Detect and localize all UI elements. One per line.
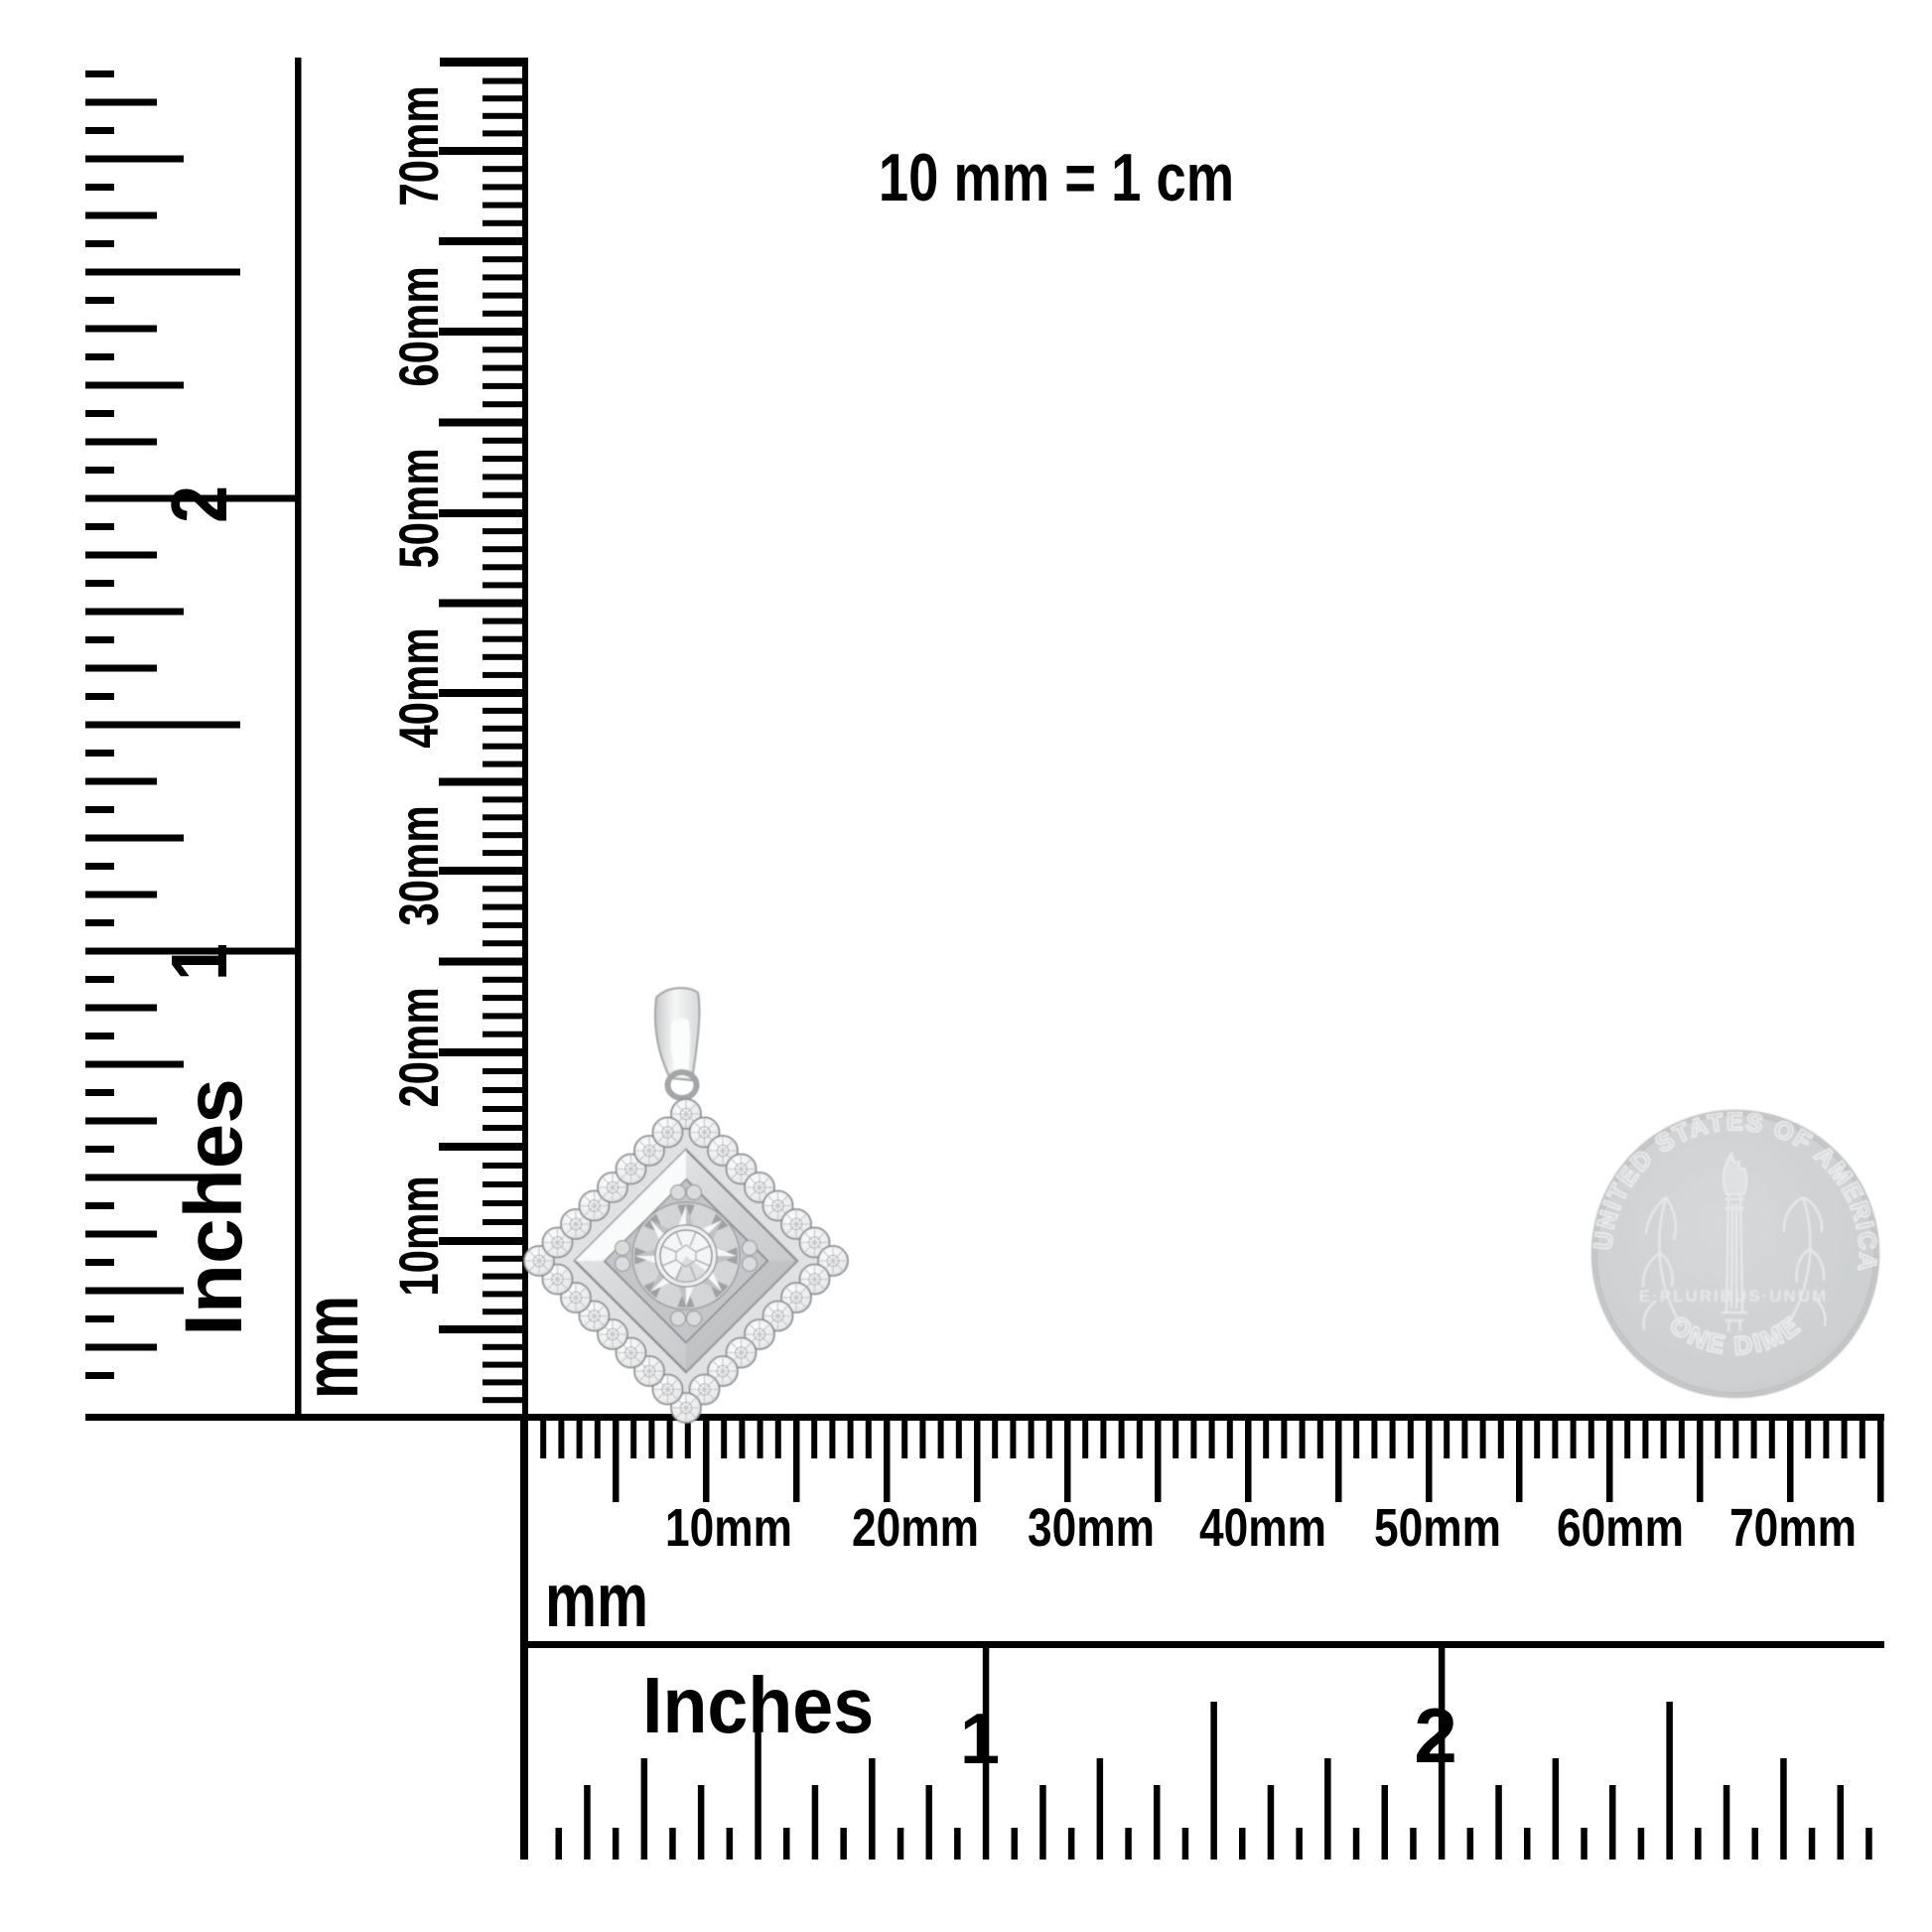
- svg-text:40mm: 40mm: [1199, 1498, 1326, 1558]
- svg-text:70mm: 70mm: [388, 85, 450, 206]
- svg-text:Inches: Inches: [642, 1661, 874, 1750]
- svg-text:40mm: 40mm: [388, 627, 450, 748]
- svg-text:mm: mm: [289, 1296, 374, 1399]
- svg-text:Inches: Inches: [169, 1078, 259, 1336]
- svg-text:30mm: 30mm: [388, 805, 450, 925]
- svg-text:1: 1: [960, 1700, 1000, 1779]
- svg-text:30mm: 30mm: [1028, 1498, 1155, 1558]
- svg-text:20mm: 20mm: [388, 987, 450, 1107]
- svg-text:2: 2: [155, 485, 243, 523]
- svg-text:10mm: 10mm: [388, 1175, 450, 1296]
- svg-text:60mm: 60mm: [388, 266, 450, 386]
- svg-text:2: 2: [1414, 1692, 1456, 1779]
- svg-text:60mm: 60mm: [1557, 1498, 1684, 1558]
- svg-text:10 mm = 1 cm: 10 mm = 1 cm: [879, 140, 1234, 215]
- svg-text:50mm: 50mm: [1374, 1498, 1501, 1558]
- svg-text:mm: mm: [545, 1558, 648, 1643]
- svg-text:70mm: 70mm: [1729, 1498, 1857, 1558]
- svg-text:10mm: 10mm: [665, 1498, 792, 1558]
- svg-text:20mm: 20mm: [852, 1498, 979, 1558]
- svg-text:50mm: 50mm: [388, 448, 450, 568]
- svg-text:1: 1: [155, 943, 243, 981]
